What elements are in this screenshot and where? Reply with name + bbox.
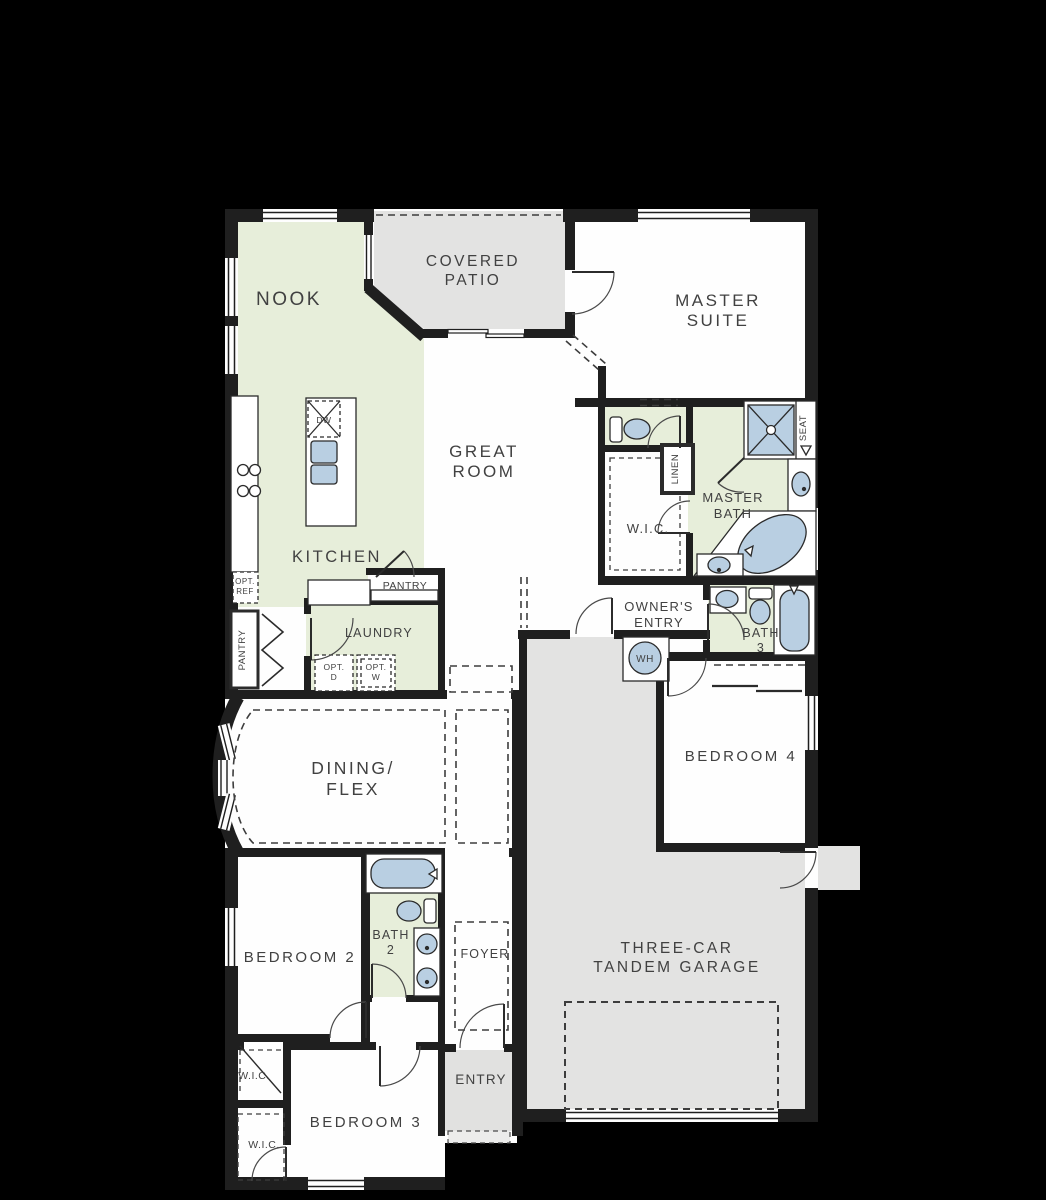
label-opt-w-2: W <box>372 672 381 682</box>
floor-plan: NOOK COVERED PATIO MASTER SUITE GREAT RO… <box>0 0 1046 1200</box>
label-nook: NOOK <box>256 289 322 310</box>
window-bedroom4-right <box>805 696 818 750</box>
label-covered-patio-1: COVERED <box>426 253 520 270</box>
label-pantry-cabinet: PANTRY <box>237 630 248 671</box>
kitchen-counter-left <box>231 396 258 572</box>
label-seat: SEAT <box>798 415 809 441</box>
entry-porch-floor <box>445 1050 512 1131</box>
sink-icon-bath2-b <box>417 968 437 988</box>
label-garage-2: TANDEM GARAGE <box>593 959 760 976</box>
label-covered-patio-2: PATIO <box>445 272 502 289</box>
bath2-tub-icon <box>366 854 442 893</box>
kitchen-sink-icon <box>311 441 337 484</box>
window-bedroom3-bottom <box>308 1177 364 1190</box>
sink-icon-master-right <box>792 472 810 496</box>
window-nook-left-2 <box>225 326 238 374</box>
window-master-top <box>638 209 750 222</box>
sink-icon-bath3 <box>716 591 738 608</box>
patio-sliding-door <box>448 329 524 338</box>
entry-stoop <box>448 1131 510 1143</box>
garage-stoop <box>818 846 860 890</box>
label-bedroom3: BEDROOM 3 <box>310 1114 423 1131</box>
label-kitchen: KITCHEN <box>292 548 382 566</box>
label-opt-w-1: OPT. <box>366 662 387 672</box>
shower-icon <box>744 401 798 459</box>
label-wh: WH <box>636 654 654 665</box>
label-opt-d-1: OPT. <box>324 662 345 672</box>
label-garage-1: THREE-CAR <box>621 940 734 957</box>
window-nook-top <box>263 209 337 222</box>
sink-icon-bath2-a <box>417 934 437 954</box>
window-nook-patio <box>364 235 373 279</box>
label-entry: ENTRY <box>455 1072 507 1087</box>
floor-plan-canvas: NOOK COVERED PATIO MASTER SUITE GREAT RO… <box>0 0 1046 1200</box>
label-bath2-2: 2 <box>387 943 395 957</box>
label-master-suite-1: MASTER <box>675 291 761 310</box>
label-owners-entry-2: ENTRY <box>634 615 684 630</box>
toilet-icon-bath2 <box>397 899 436 923</box>
window-nook-left-1 <box>225 258 238 316</box>
label-dw: DW <box>316 415 331 425</box>
kitchen-counter-bottom <box>308 580 370 605</box>
label-opt-ref-1: OPT. <box>235 577 255 586</box>
label-master-suite-2: SUITE <box>687 311 750 330</box>
label-master-bath-1: MASTER <box>702 490 763 505</box>
label-bath2-1: BATH <box>372 928 409 942</box>
bath3-tub-icon <box>774 585 815 655</box>
label-wic-bedroom3: W.I.C. <box>248 1139 280 1151</box>
label-bedroom2: BEDROOM 2 <box>244 949 357 966</box>
window-bedroom2-left <box>225 908 238 966</box>
label-bath3-2: 3 <box>757 641 765 655</box>
toilet-icon-bath3 <box>749 588 772 624</box>
label-bedroom4: BEDROOM 4 <box>685 748 798 765</box>
label-pantry-walkin: PANTRY <box>383 580 428 592</box>
label-wic-master: W.I.C. <box>627 521 670 536</box>
label-bath3-1: BATH <box>742 626 779 640</box>
label-wic-bedroom2: W.I.C. <box>238 1070 270 1082</box>
label-foyer: FOYER <box>460 947 509 961</box>
label-great-room-2: ROOM <box>453 462 516 481</box>
label-dining-2: FLEX <box>326 779 380 799</box>
label-dining-1: DINING/ <box>311 758 395 778</box>
label-owners-entry-1: OWNER'S <box>624 599 693 614</box>
label-linen: LINEN <box>670 454 681 484</box>
label-great-room-1: GREAT <box>449 442 519 461</box>
garage-door-opening <box>566 1109 778 1122</box>
label-opt-d-2: D <box>331 672 338 682</box>
label-opt-ref-2: REF <box>236 587 254 596</box>
label-master-bath-2: BATH <box>714 506 753 521</box>
label-laundry: LAUNDRY <box>345 626 413 640</box>
